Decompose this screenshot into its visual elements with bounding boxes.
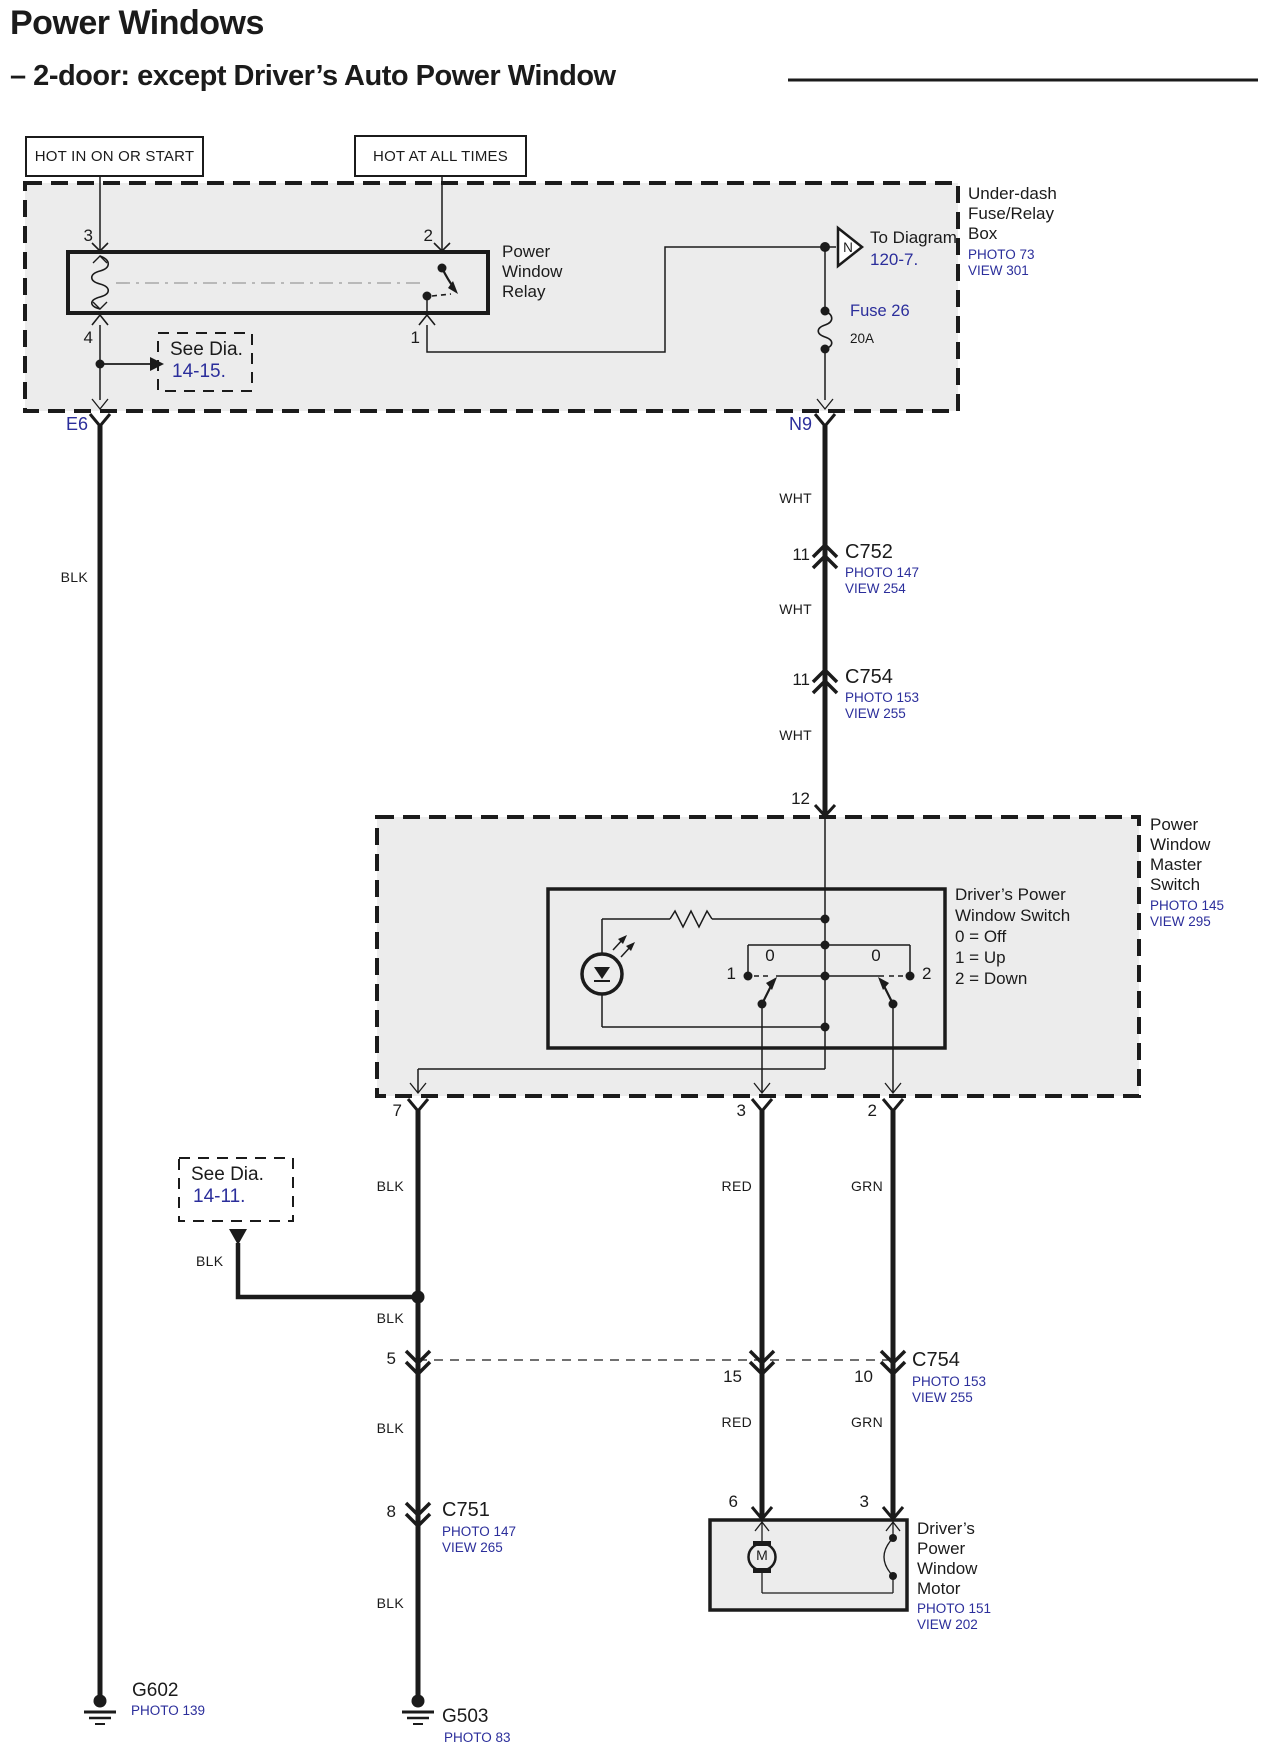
fuse-name-link[interactable]: Fuse 26 — [850, 302, 910, 320]
ground-g602-photo-link[interactable]: PHOTO 139 — [131, 1703, 205, 1718]
power-source-ignition: HOT IN ON OR START — [25, 136, 204, 177]
c754-lower-name: C754 — [912, 1349, 960, 1371]
c754-upper-pin: 11 — [773, 670, 810, 689]
motor-line3: Window — [917, 1559, 977, 1578]
motor-line2: Power — [917, 1539, 965, 1558]
to-diagram-label: To Diagram — [870, 228, 957, 247]
wire-color-wht-1: WHT — [762, 491, 812, 507]
see-dia-14-15-ref-link[interactable]: 14-15. — [172, 361, 226, 382]
wire-color-blk-row1: BLK — [356, 1179, 404, 1195]
switch-legend-down: 2 = Down — [955, 969, 1027, 988]
wire-color-red-row2: RED — [704, 1415, 752, 1431]
master-switch-line1: Power — [1150, 815, 1198, 834]
to-diagram-ref-link[interactable]: 120-7. — [870, 250, 918, 269]
wire-color-red-row1: RED — [704, 1179, 752, 1195]
terminal-n9-label[interactable]: N9 — [768, 414, 812, 434]
c754-upper-view-link[interactable]: VIEW 255 — [845, 706, 906, 721]
underdash-line1: Under-dash — [968, 184, 1057, 203]
master-switch-view-link[interactable]: VIEW 295 — [1150, 914, 1211, 929]
c754-lower-photo-link[interactable]: PHOTO 153 — [912, 1374, 986, 1389]
to-diagram-n: N — [838, 240, 858, 255]
wire-color-blk-row4: BLK — [356, 1596, 404, 1612]
motor-line1: Driver’s — [917, 1519, 975, 1538]
connector-c754-lower-symbol — [406, 1351, 905, 1374]
master-switch-pin3: 3 — [712, 1101, 746, 1120]
wire-color-blk-e6: BLK — [40, 570, 88, 586]
c754-upper-name: C754 — [845, 666, 893, 688]
master-switch-line4: Switch — [1150, 875, 1200, 894]
master-switch-pin2: 2 — [843, 1101, 877, 1120]
switch-legend-line2: Window Switch — [955, 906, 1070, 925]
wire-color-blk-branch: BLK — [196, 1254, 223, 1270]
underdash-line2: Fuse/Relay — [968, 204, 1054, 223]
underdash-photo-link[interactable]: PHOTO 73 — [968, 247, 1035, 262]
wire-color-wht-3: WHT — [762, 728, 812, 744]
c754-lower-pin15: 15 — [702, 1367, 742, 1386]
underdash-line3: Box — [968, 224, 997, 243]
power-window-relay-symbol — [68, 243, 488, 325]
wire-color-grn-row1: GRN — [835, 1179, 883, 1195]
master-switch-output-connectors — [408, 1099, 903, 1111]
c754-lower-pin5: 5 — [362, 1349, 396, 1368]
relay-name-line1: Power — [502, 242, 550, 261]
c754-upper-photo-link[interactable]: PHOTO 153 — [845, 690, 919, 705]
see-dia-14-11-ref-link[interactable]: 14-11. — [193, 1186, 245, 1207]
fuse-rating: 20A — [850, 331, 874, 346]
switch-legend-off: 0 = Off — [955, 927, 1006, 946]
master-switch-line2: Window — [1150, 835, 1210, 854]
switch-legend-up: 1 = Up — [955, 948, 1006, 967]
motor-line4: Motor — [917, 1579, 960, 1598]
c754-lower-view-link[interactable]: VIEW 255 — [912, 1390, 973, 1405]
wire-color-wht-2: WHT — [762, 602, 812, 618]
see-dia-14-15-label: See Dia. — [170, 339, 243, 360]
relay-pin-1: 1 — [382, 328, 420, 347]
master-switch-line3: Master — [1150, 855, 1202, 874]
relay-name-line3: Relay — [502, 282, 545, 301]
switch-pos-right-0: 0 — [863, 946, 889, 965]
ground-g602-label: G602 — [132, 1680, 178, 1701]
terminal-e6-label[interactable]: E6 — [46, 414, 88, 434]
c752-pin: 11 — [773, 545, 810, 564]
motor-m-symbol: M — [750, 1548, 774, 1564]
switch-pos-right-2: 2 — [922, 964, 931, 983]
switch-pos-left-0: 0 — [757, 946, 783, 965]
see-dia-14-11-label: See Dia. — [191, 1164, 264, 1185]
motor-photo-link[interactable]: PHOTO 151 — [917, 1601, 991, 1616]
page-subtitle: – 2-door: except Driver’s Auto Power Win… — [10, 60, 616, 92]
wire-color-blk-row3: BLK — [356, 1421, 404, 1437]
ground-g503-photo-link[interactable]: PHOTO 83 — [444, 1730, 511, 1745]
ground-g503-label: G503 — [442, 1706, 488, 1727]
master-switch-pin7: 7 — [368, 1101, 402, 1120]
wire-color-blk-row2: BLK — [356, 1311, 404, 1327]
c751-pin: 8 — [362, 1502, 396, 1521]
motor-view-link[interactable]: VIEW 202 — [917, 1617, 978, 1632]
relay-name-line2: Window — [502, 262, 562, 281]
page-title: Power Windows — [10, 4, 264, 42]
relay-pin-4: 4 — [55, 328, 93, 347]
wiring-svg — [0, 0, 1286, 1751]
switch-legend-line1: Driver’s Power — [955, 885, 1066, 904]
underdash-view-link[interactable]: VIEW 301 — [968, 263, 1029, 278]
wire-color-grn-row2: GRN — [835, 1415, 883, 1431]
master-switch-photo-link[interactable]: PHOTO 145 — [1150, 898, 1224, 913]
c751-view-link[interactable]: VIEW 265 — [442, 1540, 503, 1555]
c752-name: C752 — [845, 541, 893, 563]
ground-g602-symbol — [84, 1695, 116, 1725]
motor-pin6: 6 — [704, 1492, 738, 1511]
c754-lower-pin10: 10 — [833, 1367, 873, 1386]
relay-pin-3: 3 — [55, 226, 93, 245]
motor-box — [710, 1520, 907, 1610]
master-switch-pin12: 12 — [773, 789, 810, 808]
switch-pos-left-1: 1 — [706, 964, 736, 983]
ground-g503-symbol — [402, 1695, 434, 1725]
wiring-diagram-page: Power Windows – 2-door: except Driver’s … — [0, 0, 1286, 1751]
c751-name: C751 — [442, 1499, 490, 1521]
c752-photo-link[interactable]: PHOTO 147 — [845, 565, 919, 580]
motor-pin3: 3 — [835, 1492, 869, 1511]
c752-view-link[interactable]: VIEW 254 — [845, 581, 906, 596]
relay-pin-2: 2 — [395, 226, 433, 245]
c751-photo-link[interactable]: PHOTO 147 — [442, 1524, 516, 1539]
power-source-battery: HOT AT ALL TIMES — [354, 135, 527, 177]
